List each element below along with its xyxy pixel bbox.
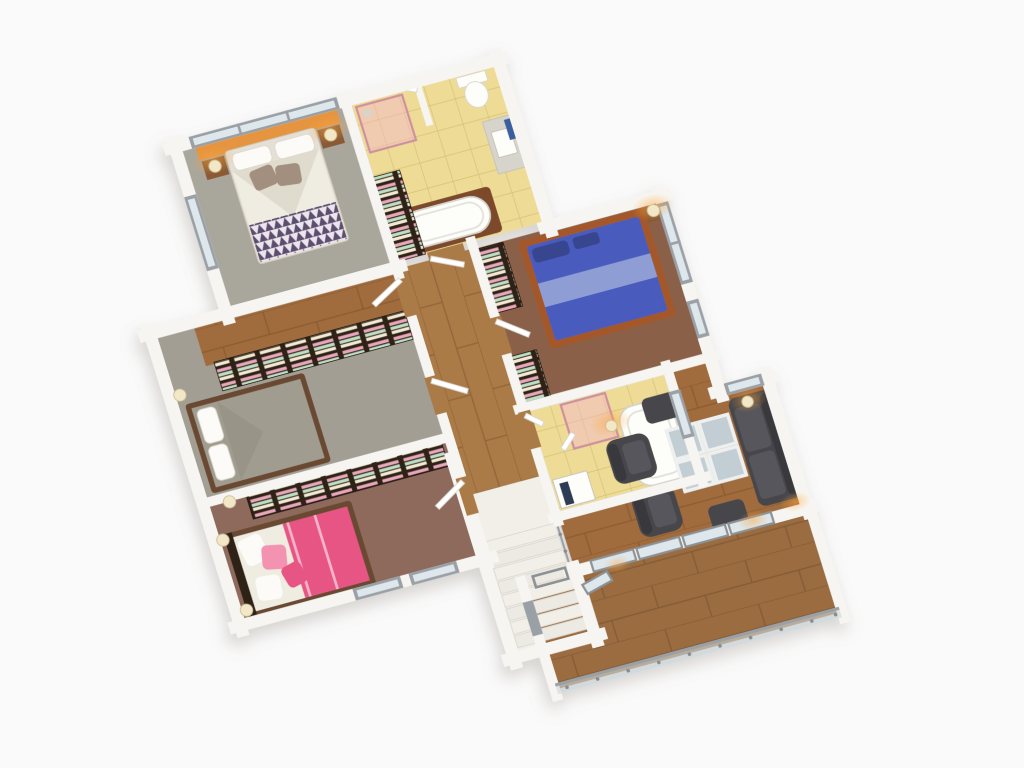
floor-plan-render	[0, 0, 1024, 768]
pillow	[254, 574, 283, 602]
cushion	[274, 162, 302, 186]
floor-plan-stage	[0, 0, 1024, 768]
pillow-pink	[261, 544, 288, 570]
